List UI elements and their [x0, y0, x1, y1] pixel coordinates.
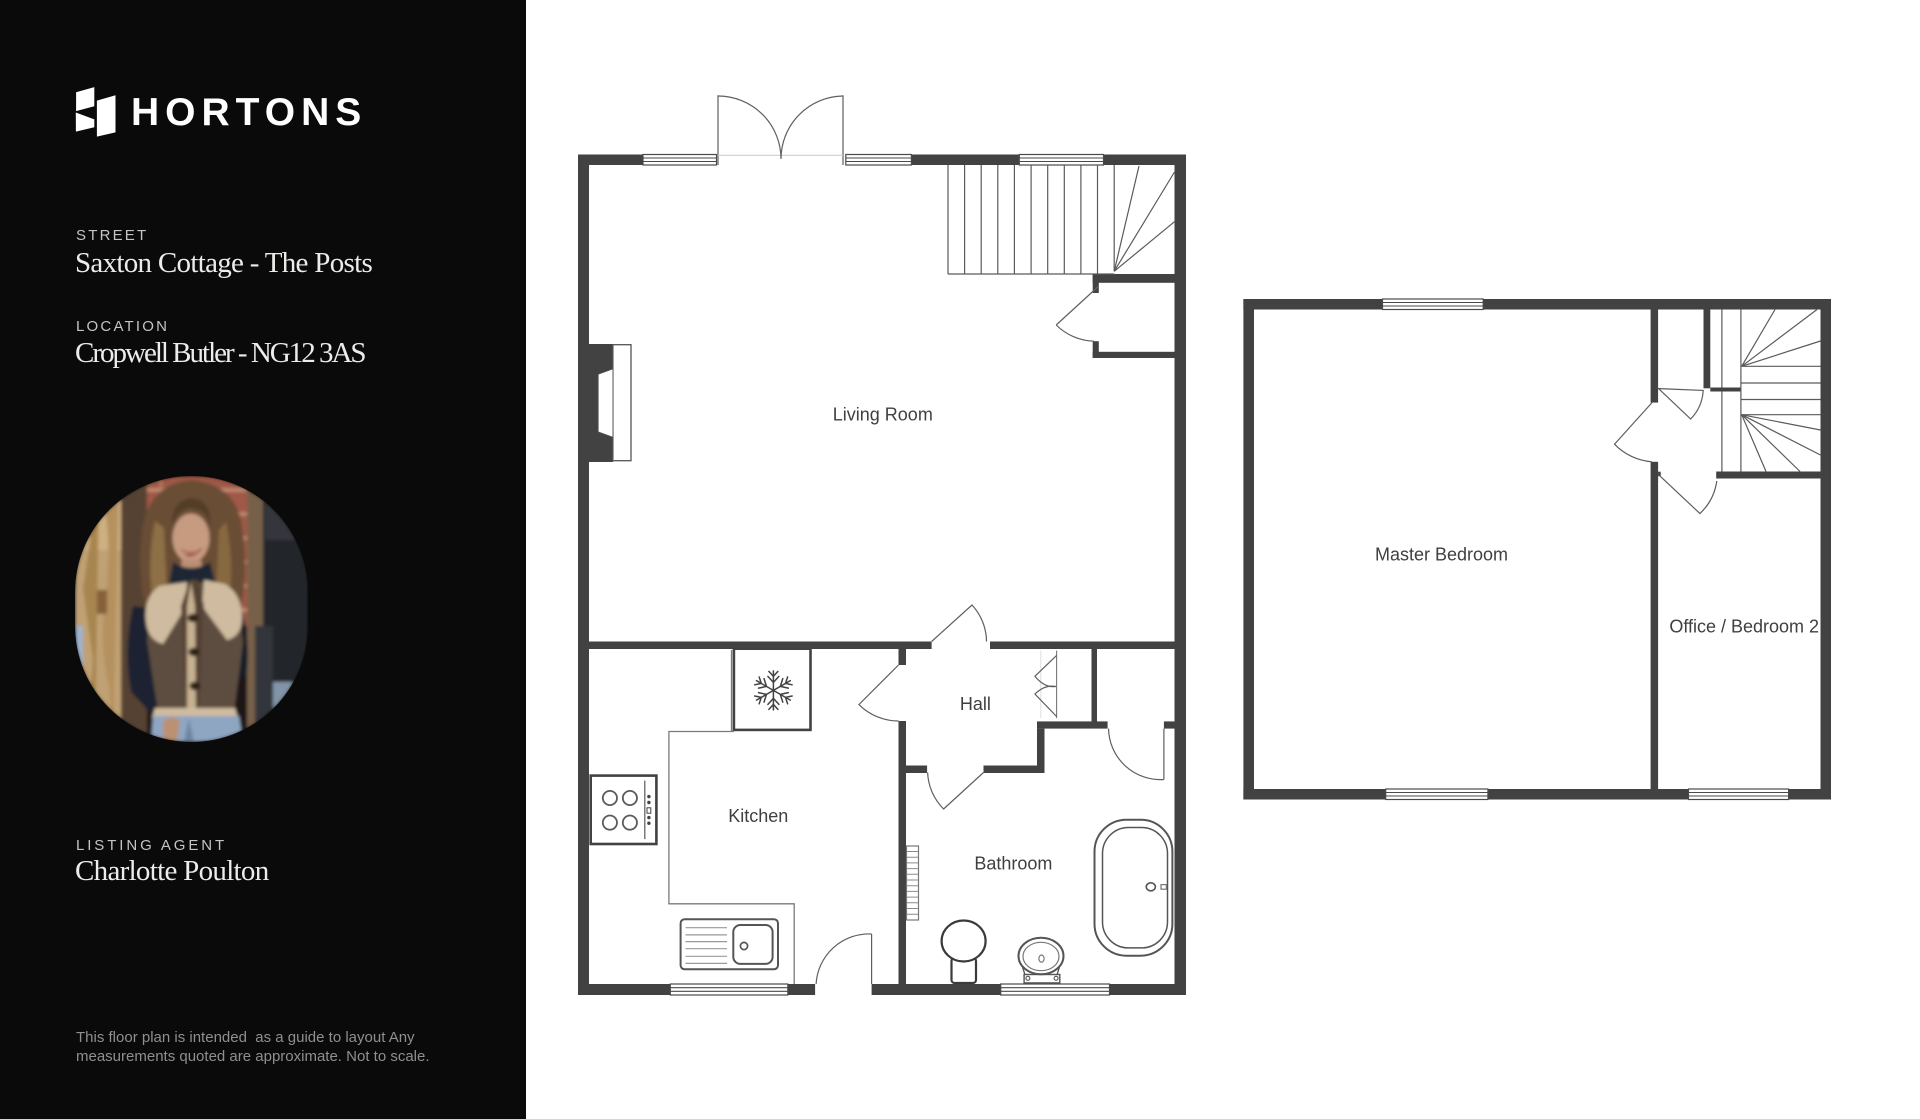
svg-text:Bathroom: Bathroom [974, 854, 1052, 874]
svg-text:Master Bedroom: Master Bedroom [1375, 545, 1508, 565]
svg-text:Kitchen: Kitchen [728, 806, 788, 826]
svg-text:Office / Bedroom 2: Office / Bedroom 2 [1669, 617, 1819, 637]
svg-text:Hall: Hall [960, 694, 991, 714]
svg-text:Living Room: Living Room [833, 405, 933, 425]
